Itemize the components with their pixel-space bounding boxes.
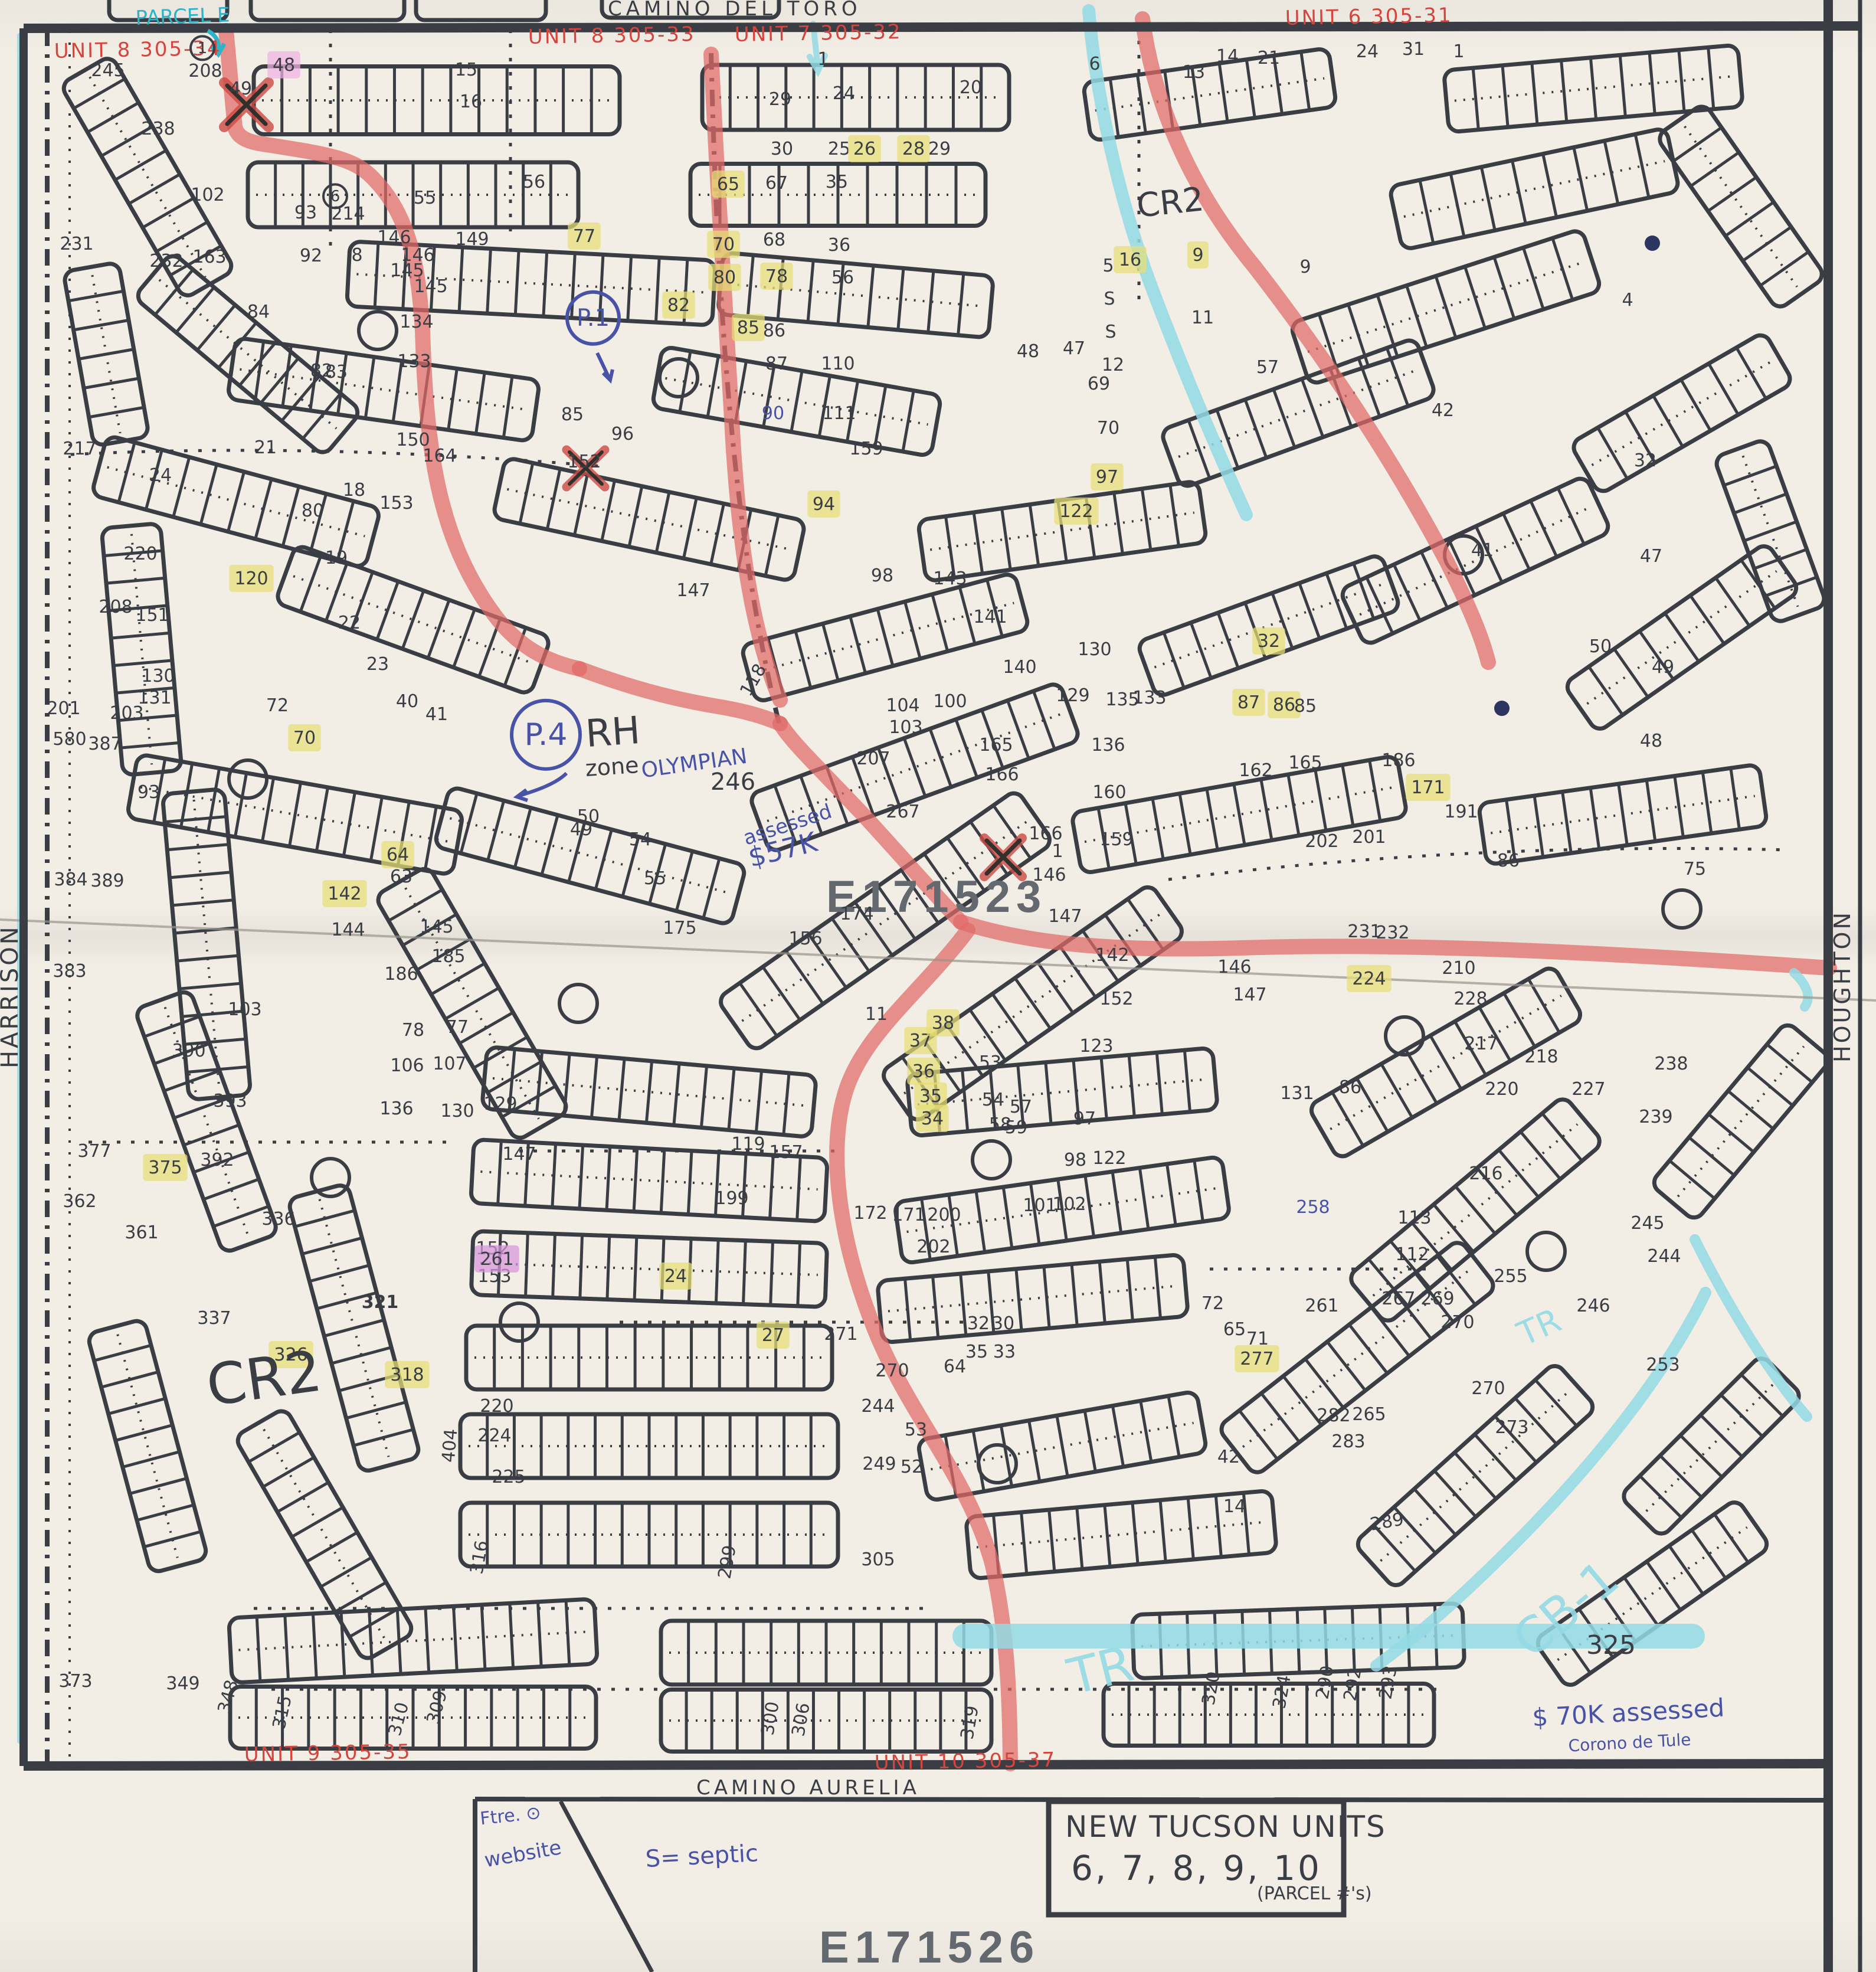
lot-divider xyxy=(956,720,977,778)
parcel-block xyxy=(1570,332,1793,495)
parcel-block xyxy=(661,1621,991,1685)
plat-map-canvas: NEW TUCSON UNITS 6, 7, 8, 9, 10 (PARCEL … xyxy=(0,0,1876,1972)
lot-divider xyxy=(303,394,341,439)
lot-number: 186 xyxy=(1381,750,1415,771)
lot-number: 70 xyxy=(293,728,316,748)
block-outline xyxy=(877,1254,1188,1343)
edge-label-houghton: HOUGHTON xyxy=(1829,910,1855,1062)
lot-divider xyxy=(1164,633,1184,688)
lot-divider xyxy=(656,257,659,322)
annotation: 6 xyxy=(330,188,341,205)
parcel-block xyxy=(741,573,1030,703)
lot-divider xyxy=(116,1425,173,1441)
lot-number: 14 xyxy=(1216,46,1239,67)
lot-divider xyxy=(770,1155,774,1219)
lot-number: 9 xyxy=(1192,245,1203,266)
lot-divider xyxy=(1590,788,1599,849)
lot-number: 30 xyxy=(992,1313,1014,1334)
lot-divider xyxy=(1543,154,1557,218)
lot-divider xyxy=(744,1241,746,1304)
lot-number: 110 xyxy=(821,354,854,374)
lot-number: 387 xyxy=(88,734,122,754)
lot-number: 239 xyxy=(1639,1107,1672,1127)
block-midline xyxy=(90,77,205,277)
lot-divider xyxy=(1332,1093,1363,1146)
block-outline xyxy=(906,1048,1217,1136)
lot-number: 258 xyxy=(1296,1197,1330,1218)
lot-divider xyxy=(446,988,499,1019)
lot-number: 49 xyxy=(1652,657,1674,678)
unit-label: UNIT 6 305-31 xyxy=(1285,4,1452,30)
lot-number: 113 xyxy=(1397,1208,1431,1228)
lot-number: 85 xyxy=(1294,696,1317,717)
lot-divider xyxy=(1167,1164,1176,1225)
lot-divider xyxy=(748,255,753,317)
lot-divider xyxy=(285,1615,289,1680)
lot-divider xyxy=(74,79,125,109)
edge-label-harrison: HARRISON xyxy=(0,924,24,1068)
annotation: Corono de Tule xyxy=(1568,1730,1691,1756)
lot-number: 166 xyxy=(985,764,1019,785)
block-outline xyxy=(1137,554,1401,698)
lot-number: 70 xyxy=(1097,418,1119,439)
parcel-block xyxy=(493,457,806,582)
lot-divider xyxy=(369,1611,373,1676)
lot-divider xyxy=(1343,765,1353,826)
unit-label: UNIT 10 305-37 xyxy=(874,1748,1056,1775)
lot-number: 165 xyxy=(979,735,1013,756)
lot-divider xyxy=(1728,1091,1773,1129)
cul-de-sac xyxy=(500,1303,538,1341)
street-label-camino-del-toro: CAMINO DEL TORO xyxy=(608,0,862,21)
lot-number: 159 xyxy=(1099,829,1133,850)
parcel-block xyxy=(1083,48,1337,140)
lot-divider xyxy=(1327,1342,1366,1391)
lot-number: 11 xyxy=(1191,308,1214,328)
p1-arrow xyxy=(597,353,613,380)
lot-number: 90 xyxy=(762,403,784,424)
lot-number: 231 xyxy=(60,234,93,254)
lot-number: 80 xyxy=(713,267,736,288)
lot-number: 106 xyxy=(390,1055,424,1076)
lot-divider xyxy=(580,1145,583,1209)
lot-number: 98 xyxy=(871,565,893,586)
lot-number: S xyxy=(1105,322,1116,342)
lot-divider xyxy=(1605,140,1618,204)
unit-label: UNIT 7 305-32 xyxy=(734,20,902,47)
lot-divider xyxy=(1394,564,1420,620)
lot-divider xyxy=(1153,799,1163,859)
lot-number: 383 xyxy=(53,961,86,982)
lot-divider xyxy=(1284,1376,1322,1425)
lot-divider xyxy=(1620,55,1625,117)
lot-divider xyxy=(771,1241,773,1305)
lot-number: 65 xyxy=(717,174,739,195)
lot-number: 146 xyxy=(1217,957,1251,977)
lot-divider xyxy=(173,457,189,516)
lot-divider xyxy=(1574,148,1587,211)
lot-number: 120 xyxy=(234,568,268,589)
lot-number: 93 xyxy=(137,782,160,803)
annotation: Ftre. ⊙ xyxy=(479,1803,542,1830)
lot-divider xyxy=(1455,1453,1496,1499)
lot-divider xyxy=(87,103,139,132)
lot-divider xyxy=(1349,1325,1387,1373)
parcel-block xyxy=(1714,439,1827,624)
lot-divider xyxy=(214,1206,269,1227)
annotation: 1 xyxy=(198,40,208,57)
lot-divider xyxy=(1299,583,1320,639)
lot-divider xyxy=(1455,1186,1495,1234)
lot-number: 67 xyxy=(765,173,788,194)
lot-number: 175 xyxy=(663,918,696,938)
lot-divider xyxy=(1160,1500,1165,1562)
parcel-block xyxy=(1443,45,1743,132)
lot-divider xyxy=(1475,1434,1516,1480)
lot-divider xyxy=(520,463,533,524)
lot-number: 348 xyxy=(214,1677,243,1715)
lot-divider xyxy=(1737,348,1766,399)
lot-number: 203 xyxy=(110,703,143,724)
lot-divider xyxy=(1216,1495,1221,1557)
lot-divider xyxy=(1057,1415,1068,1476)
lot-divider xyxy=(1288,774,1299,835)
lot-number: 384 xyxy=(54,869,87,890)
legend-line1: NEW TUCSON UNITS xyxy=(1065,1810,1386,1844)
lot-number: 21 xyxy=(254,437,277,458)
lot-number: 123 xyxy=(1079,1036,1113,1057)
lot-number: 35 xyxy=(826,172,848,192)
lot-divider xyxy=(1646,1562,1680,1610)
lot-divider xyxy=(129,174,180,204)
cul-de-sac xyxy=(973,1141,1010,1179)
lot-divider xyxy=(905,601,920,659)
lot-number: 130 xyxy=(440,1101,474,1121)
parcel-block xyxy=(229,1599,598,1683)
lot-number: 93 xyxy=(294,202,317,223)
lot-divider xyxy=(371,797,382,861)
block-outline xyxy=(1570,332,1793,495)
lot-number: 271 xyxy=(824,1324,857,1345)
lot-divider xyxy=(1301,52,1309,110)
lot-divider xyxy=(218,323,256,368)
lot-number: 228 xyxy=(1453,989,1487,1009)
cul-de-sac xyxy=(1527,1232,1565,1270)
lot-number: 5 xyxy=(1102,256,1114,276)
lot-divider xyxy=(111,633,170,638)
lot-divider xyxy=(1305,1359,1344,1408)
lot-number: 25 xyxy=(828,139,850,159)
lot-divider xyxy=(1406,1050,1437,1104)
lot-number: 41 xyxy=(1471,540,1494,561)
lot-number: 103 xyxy=(889,717,922,738)
lot-divider xyxy=(1531,501,1557,557)
parcel-block xyxy=(227,338,540,442)
lot-divider xyxy=(113,660,172,666)
lot-number: 42 xyxy=(1217,1447,1240,1467)
lot-divider xyxy=(482,1605,485,1670)
lot-number: 97 xyxy=(1073,1108,1096,1129)
lot-number: 309 xyxy=(423,1688,452,1726)
lot-divider xyxy=(1708,47,1714,109)
lot-divider xyxy=(130,1479,187,1494)
lot-number: 151 xyxy=(135,605,169,626)
lot-divider xyxy=(431,963,485,995)
lot-divider xyxy=(137,1505,194,1520)
lot-divider xyxy=(1624,1577,1658,1626)
lot-number: 48 xyxy=(1017,341,1039,362)
lot-number: 220 xyxy=(123,544,157,564)
lot-divider xyxy=(1724,466,1776,485)
lot-divider xyxy=(109,1398,166,1414)
lot-number: 18 xyxy=(343,480,365,501)
lot-divider xyxy=(1430,1036,1462,1090)
lot-number: 1 xyxy=(817,49,829,70)
lot-number: 147 xyxy=(1233,985,1266,1005)
lot-number: 75 xyxy=(1684,859,1706,879)
lot-divider xyxy=(629,486,642,547)
lot-divider xyxy=(1589,666,1622,715)
lot-divider xyxy=(1261,1393,1299,1442)
lot-number: 244 xyxy=(861,1396,895,1417)
lot-number: 133 xyxy=(1132,688,1166,708)
lot-divider xyxy=(1521,1131,1560,1179)
lot-divider xyxy=(515,250,519,315)
lot-divider xyxy=(169,872,231,878)
lot-divider xyxy=(1743,227,1791,261)
lot-divider xyxy=(119,443,135,502)
lot-divider xyxy=(1168,1396,1179,1457)
lot-number: 255 xyxy=(1494,1266,1527,1287)
lot-number: 15 xyxy=(455,60,477,80)
lot-number: 133 xyxy=(397,351,431,372)
lot-number: 64 xyxy=(387,845,409,865)
lot-number: 31 xyxy=(1402,39,1425,60)
lot-divider xyxy=(197,305,235,351)
lot-number: 103 xyxy=(228,999,261,1020)
lot-number: 377 xyxy=(77,1141,111,1162)
lot-number: 244 xyxy=(1647,1246,1681,1267)
lot-divider xyxy=(932,594,948,652)
lot-number: 227 xyxy=(1571,1079,1605,1100)
lot-divider xyxy=(797,1156,801,1220)
lot-divider xyxy=(1512,161,1525,224)
lot-number: 54 xyxy=(982,1090,1004,1110)
lot-divider xyxy=(832,918,869,972)
lot-number: 142 xyxy=(328,884,361,904)
lot-number: 245 xyxy=(1631,1213,1664,1234)
lot-number: 147 xyxy=(1048,906,1082,927)
lot-divider xyxy=(1542,1113,1582,1160)
lot-number: 282 xyxy=(1317,1405,1350,1426)
lot-number: 23 xyxy=(366,654,389,675)
lot-divider xyxy=(1640,1476,1682,1518)
lot-divider xyxy=(208,768,220,832)
annotation: CR2 xyxy=(1135,180,1206,225)
lot-number: 290 xyxy=(1312,1664,1338,1700)
block-midline xyxy=(132,534,152,765)
lot-number: 55 xyxy=(414,188,436,208)
lot-divider xyxy=(1037,962,1073,1013)
lot-number: 165 xyxy=(1288,753,1322,773)
lot-number: 392 xyxy=(200,1150,234,1170)
parcel-block xyxy=(87,1319,208,1574)
lot-number: 104 xyxy=(886,695,919,716)
lot-divider xyxy=(228,472,244,531)
block-midline xyxy=(1404,161,1665,217)
lot-divider xyxy=(155,270,193,315)
lot-number: 245 xyxy=(91,60,125,81)
lot-divider xyxy=(547,469,560,529)
lot-number: 172 xyxy=(853,1203,887,1224)
lot-divider xyxy=(683,498,696,558)
lot-number: 1 xyxy=(1453,41,1464,62)
lot-number: 136 xyxy=(379,1098,413,1119)
lot-divider xyxy=(729,1068,734,1130)
lot-divider xyxy=(1170,485,1179,546)
lot-divider xyxy=(248,1433,300,1462)
lot-divider xyxy=(1049,1510,1055,1572)
lot-number: 134 xyxy=(400,312,433,332)
lot-number: 202 xyxy=(1305,831,1338,852)
lot-number: 310 xyxy=(385,1700,414,1738)
lot-divider xyxy=(309,1265,369,1281)
lot-number: 337 xyxy=(197,1308,231,1329)
lot-divider xyxy=(711,503,724,564)
lot-divider xyxy=(487,248,491,313)
lot-divider xyxy=(1354,563,1374,619)
lot-number: 71 xyxy=(1246,1329,1269,1349)
lot-divider xyxy=(1499,1150,1538,1197)
lot-number: 269 xyxy=(1420,1288,1454,1309)
lot-number: 24 xyxy=(833,83,855,104)
lot-divider xyxy=(204,1179,259,1199)
lot-divider xyxy=(1077,1507,1082,1569)
lot-divider xyxy=(1415,1489,1456,1535)
lot-divider xyxy=(1015,978,1050,1029)
lot-divider xyxy=(300,554,322,612)
lot-divider xyxy=(1681,380,1711,431)
lot-number: 29 xyxy=(769,89,791,110)
lot-divider xyxy=(823,624,838,681)
annotation: TR xyxy=(1511,1301,1567,1355)
lot-divider xyxy=(78,349,134,359)
lot-divider xyxy=(993,994,1028,1045)
lot-number: 160 xyxy=(1092,782,1126,803)
legend-box: NEW TUCSON UNITS 6, 7, 8, 9, 10 (PARCEL … xyxy=(1049,1801,1386,1915)
lot-number: 84 xyxy=(247,302,270,322)
lot-number: 34 xyxy=(921,1108,944,1129)
cul-de-sac xyxy=(229,760,267,798)
lot-number: 163 xyxy=(192,247,226,267)
lot-number: 65 xyxy=(1223,1319,1246,1340)
lot-number: 152 xyxy=(1099,989,1133,1009)
lot-divider xyxy=(1219,63,1227,122)
block-midline xyxy=(1646,1381,1777,1512)
parcel-block xyxy=(63,262,149,446)
lot-number: 273 xyxy=(1495,1417,1528,1438)
lot-divider xyxy=(1155,1257,1160,1319)
lot-number: 77 xyxy=(446,1017,469,1038)
parcel-block xyxy=(1656,103,1826,310)
lot-number: 210 xyxy=(1442,958,1475,979)
lot-divider xyxy=(515,808,531,868)
lot-number: 270 xyxy=(1471,1378,1505,1399)
lot-divider xyxy=(552,1144,556,1208)
lot-divider xyxy=(343,792,355,856)
lot-number: 393 xyxy=(213,1091,247,1111)
lot-divider xyxy=(688,1151,692,1215)
lot-number: 220 xyxy=(1485,1079,1518,1100)
lot-number: 375 xyxy=(148,1157,182,1178)
block-outline xyxy=(227,338,540,442)
lot-number: 63 xyxy=(390,866,412,887)
lot-number: 136 xyxy=(1091,735,1125,756)
lot-divider xyxy=(179,983,241,989)
lot-divider xyxy=(503,377,512,438)
cul-de-sac xyxy=(559,985,597,1022)
lot-number: 214 xyxy=(331,204,365,224)
lot-divider xyxy=(144,1016,199,1036)
lot-divider xyxy=(791,371,802,431)
lot-divider xyxy=(448,368,457,430)
lot-divider xyxy=(1701,1415,1743,1457)
lot-number: 32 xyxy=(1258,631,1280,652)
lot-number: 270 xyxy=(1440,1312,1474,1333)
lot-divider xyxy=(144,1532,201,1547)
lot-number: 157 xyxy=(769,1142,803,1163)
lot-divider xyxy=(1184,1050,1190,1112)
lot-divider xyxy=(1436,276,1456,338)
lot-divider xyxy=(201,465,217,524)
lot-divider xyxy=(1767,1044,1812,1082)
lot-divider xyxy=(1734,494,1786,513)
annotation: CR2 xyxy=(202,1337,326,1419)
lot-number: 14 xyxy=(1223,1496,1246,1517)
lot-number: 53 xyxy=(905,1420,927,1440)
lot-divider xyxy=(1692,1530,1726,1578)
unit-label: UNIT 8 305-33 xyxy=(528,22,695,49)
lot-divider xyxy=(1558,488,1584,544)
lot-divider xyxy=(1709,364,1739,415)
block-outline xyxy=(135,989,279,1254)
lot-number: 86 xyxy=(763,321,785,341)
lot-number: 78 xyxy=(402,1020,424,1041)
lot-divider xyxy=(123,1452,180,1467)
lot-divider xyxy=(1690,596,1724,644)
lot-divider xyxy=(1503,514,1529,570)
lot-number: 48 xyxy=(273,55,295,76)
lot-divider xyxy=(1494,257,1514,319)
lot-divider xyxy=(1407,286,1427,348)
lot-number: 246 xyxy=(1576,1296,1610,1316)
lot-number: 38 xyxy=(932,1013,954,1034)
lot-number: 145 xyxy=(390,260,424,281)
lot-number: 224 xyxy=(477,1425,511,1446)
lot-divider xyxy=(1721,1395,1763,1437)
lot-number: S xyxy=(1104,289,1115,309)
lot-number: 56 xyxy=(523,172,545,192)
lot-number: 171 xyxy=(892,1205,925,1225)
lot-number: 217 xyxy=(63,439,96,459)
lot-number: 191 xyxy=(1444,802,1478,822)
lot-number: 580 xyxy=(53,729,86,750)
lot-number: 98 xyxy=(1064,1150,1086,1170)
parcel-block xyxy=(460,1503,838,1567)
lot-divider xyxy=(1101,1058,1106,1120)
lot-number: 267 xyxy=(886,802,919,822)
lot-divider xyxy=(1590,58,1596,120)
